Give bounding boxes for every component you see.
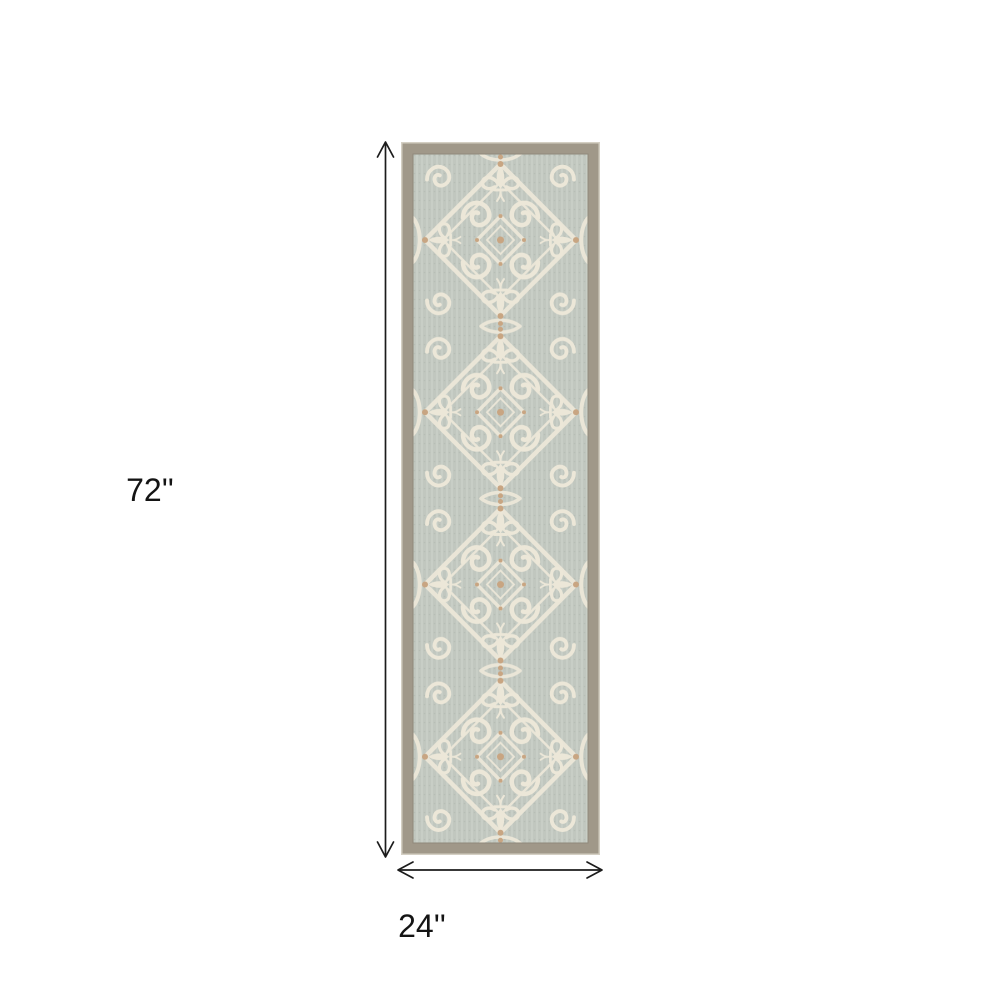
width-dimension-arrow	[398, 862, 602, 878]
rug-image	[401, 142, 600, 855]
rug-pattern	[413, 154, 588, 843]
height-dimension-label: 72''	[100, 474, 200, 506]
height-arrow-head-bottom	[378, 842, 394, 857]
width-arrow-head-left	[398, 862, 413, 878]
width-dimension-label: 24''	[372, 910, 472, 942]
width-arrow-head-right	[587, 862, 602, 878]
dimension-diagram: 72'' 24''	[0, 0, 1000, 1000]
height-dimension-arrow	[378, 142, 394, 857]
height-arrow-head-top	[378, 142, 394, 157]
